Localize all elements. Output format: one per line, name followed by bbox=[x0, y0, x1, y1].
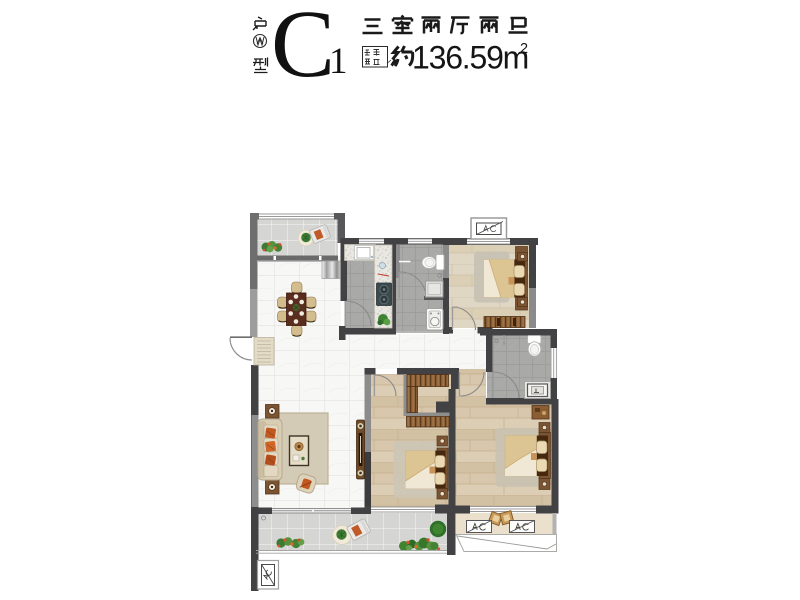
svg-text:136.59m: 136.59m bbox=[412, 40, 528, 76]
svg-text:C: C bbox=[271, 0, 335, 97]
svg-text:2: 2 bbox=[520, 41, 528, 57]
svg-text:1: 1 bbox=[329, 41, 348, 82]
